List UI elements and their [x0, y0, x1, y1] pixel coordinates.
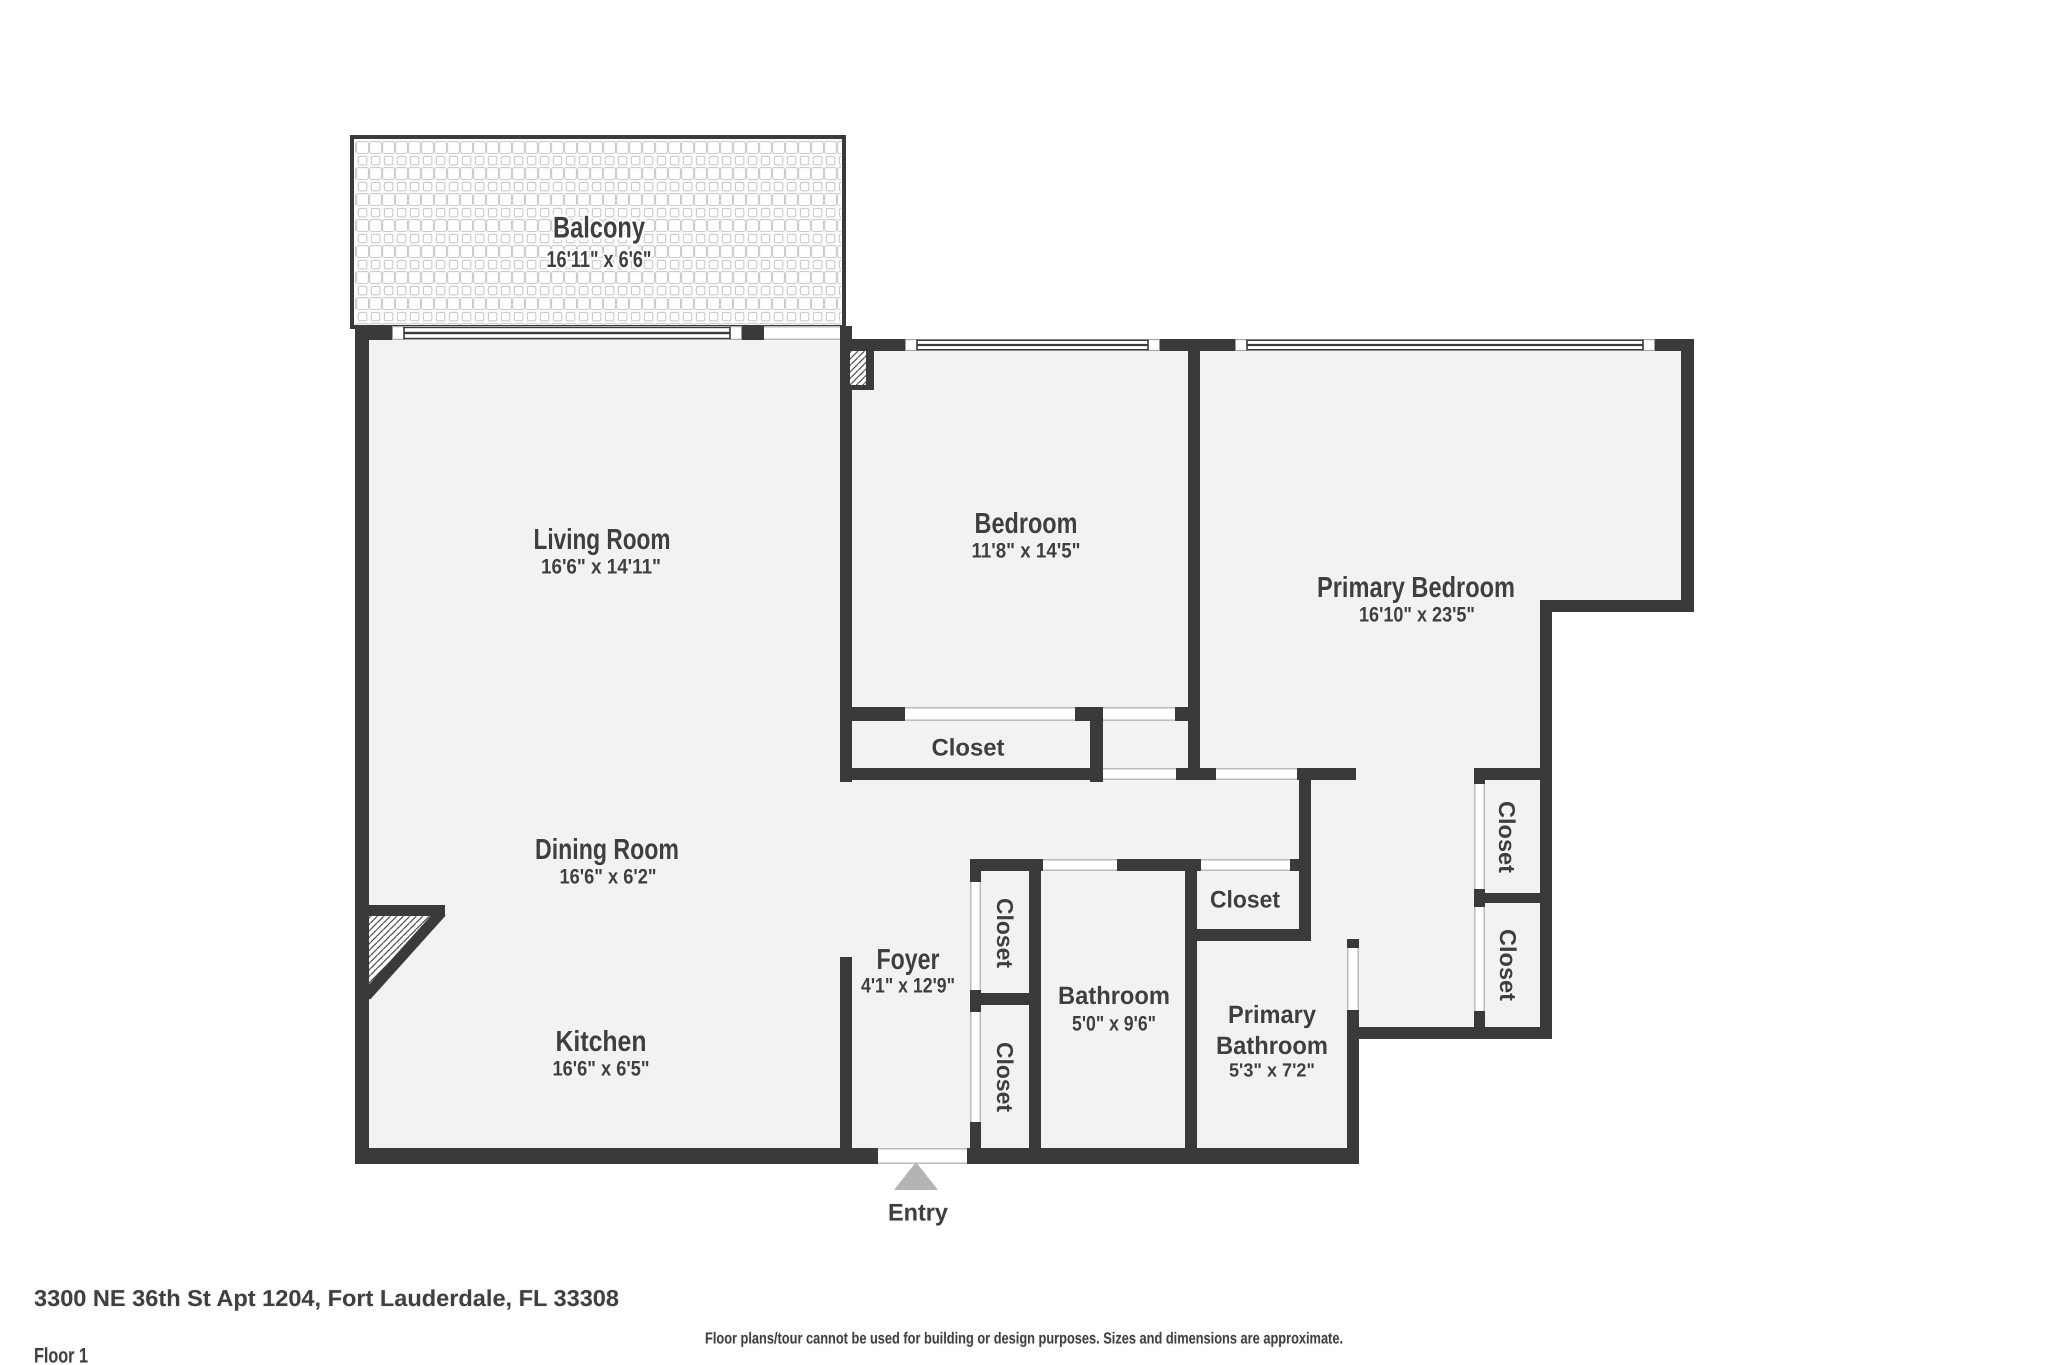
svg-text:Closet: Closet	[992, 898, 1018, 968]
svg-text:Bathroom: Bathroom	[1058, 982, 1170, 1010]
svg-text:Closet: Closet	[1495, 929, 1521, 1001]
svg-text:4'1" x 12'9": 4'1" x 12'9"	[861, 975, 955, 998]
svg-text:Floor 1: Floor 1	[34, 1345, 88, 1365]
svg-text:16'11" x 6'6": 16'11" x 6'6"	[547, 246, 652, 272]
svg-text:Closet: Closet	[1210, 887, 1280, 914]
svg-text:Foyer: Foyer	[877, 944, 940, 976]
svg-text:Living Room: Living Room	[534, 524, 671, 556]
svg-text:Primary Bedroom: Primary Bedroom	[1317, 572, 1515, 604]
svg-text:Bedroom: Bedroom	[975, 508, 1078, 540]
svg-text:Dining Room: Dining Room	[535, 834, 679, 866]
svg-text:16'10" x 23'5": 16'10" x 23'5"	[1359, 604, 1475, 627]
svg-text:16'6" x 6'2": 16'6" x 6'2"	[560, 866, 657, 889]
svg-text:11'8" x 14'5": 11'8" x 14'5"	[972, 540, 1081, 563]
svg-text:Primary: Primary	[1228, 1001, 1316, 1029]
svg-text:3300 NE 36th St Apt 1204, Fort: 3300 NE 36th St Apt 1204, Fort Lauderdal…	[34, 1285, 619, 1311]
svg-text:Floor plans/tour cannot be use: Floor plans/tour cannot be used for buil…	[705, 1331, 1343, 1348]
svg-text:Bathroom: Bathroom	[1216, 1032, 1328, 1060]
svg-text:Entry: Entry	[888, 1200, 949, 1227]
svg-text:5'0" x 9'6": 5'0" x 9'6"	[1072, 1013, 1156, 1036]
svg-text:Balcony: Balcony	[553, 212, 645, 245]
svg-text:5'3" x 7'2": 5'3" x 7'2"	[1229, 1061, 1315, 1082]
svg-text:Closet: Closet	[1494, 801, 1520, 873]
svg-text:16'6" x 14'11": 16'6" x 14'11"	[541, 556, 661, 579]
svg-text:Closet: Closet	[992, 1042, 1018, 1112]
svg-text:Closet: Closet	[932, 735, 1005, 762]
svg-text:16'6" x 6'5": 16'6" x 6'5"	[553, 1058, 650, 1081]
svg-text:Kitchen: Kitchen	[556, 1026, 647, 1058]
